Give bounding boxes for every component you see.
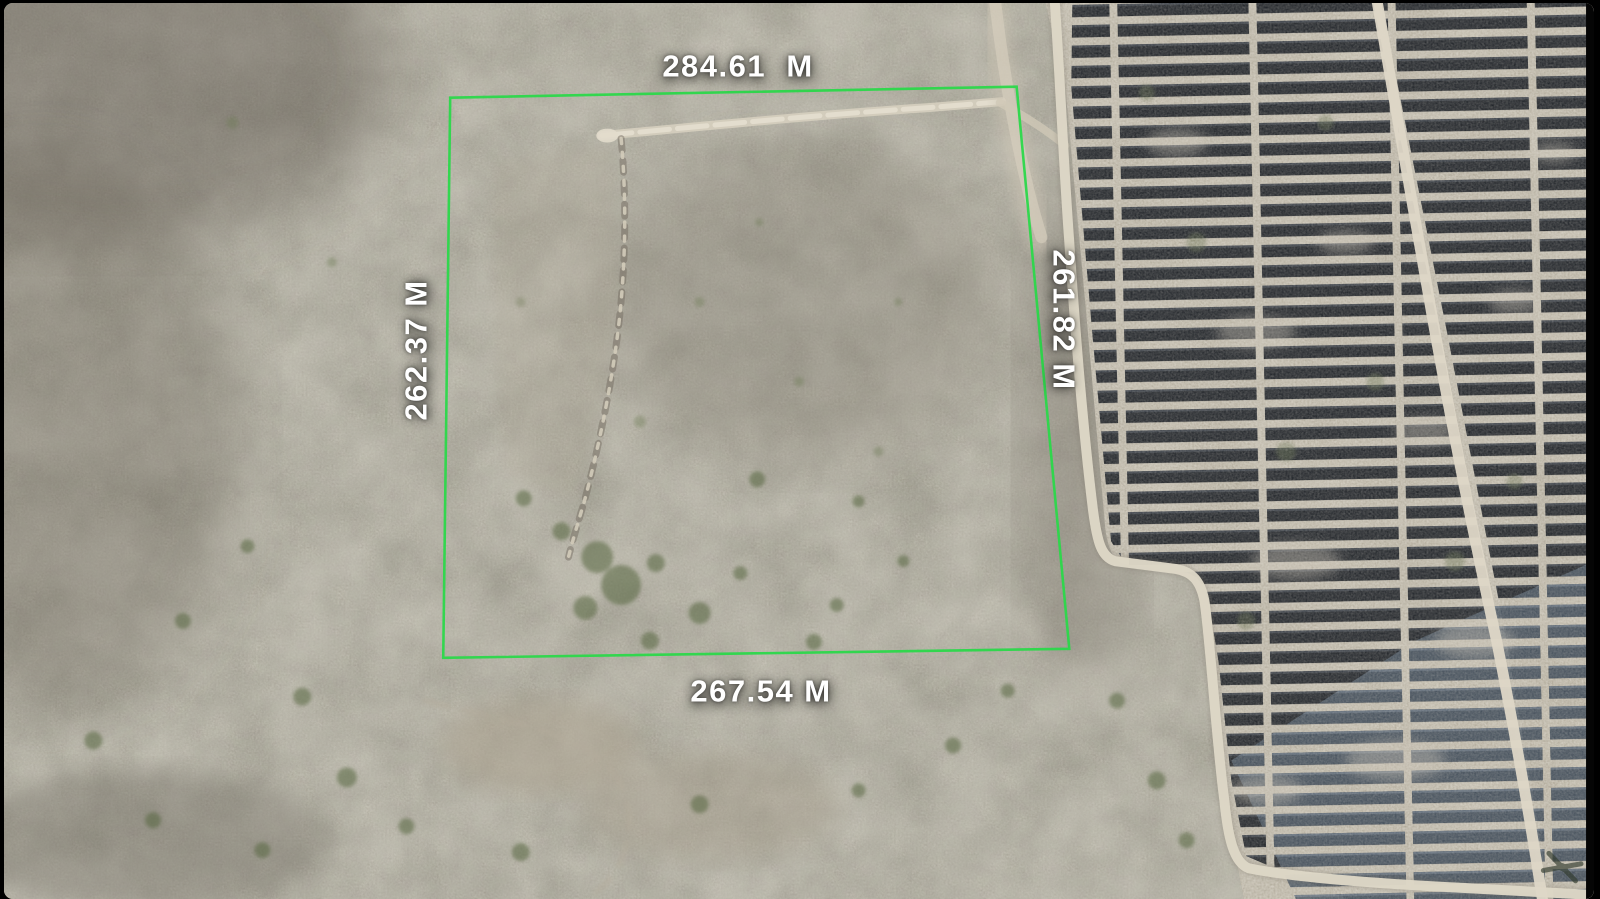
- measurement-label-right: 261.82 M: [1049, 249, 1080, 390]
- measurement-label-left: 262.37 M: [401, 279, 432, 420]
- measurement-label-bottom: 267.54 M: [690, 676, 831, 707]
- scene-svg: [4, 3, 1594, 899]
- aerial-photo-frame: 284.61 M 262.37 M 261.82 M 267.54 M: [0, 0, 1600, 899]
- measurement-label-top: 284.61 M: [662, 51, 813, 82]
- aerial-photo: 284.61 M 262.37 M 261.82 M 267.54 M: [4, 3, 1594, 899]
- letterbox-strip: [1586, 3, 1594, 899]
